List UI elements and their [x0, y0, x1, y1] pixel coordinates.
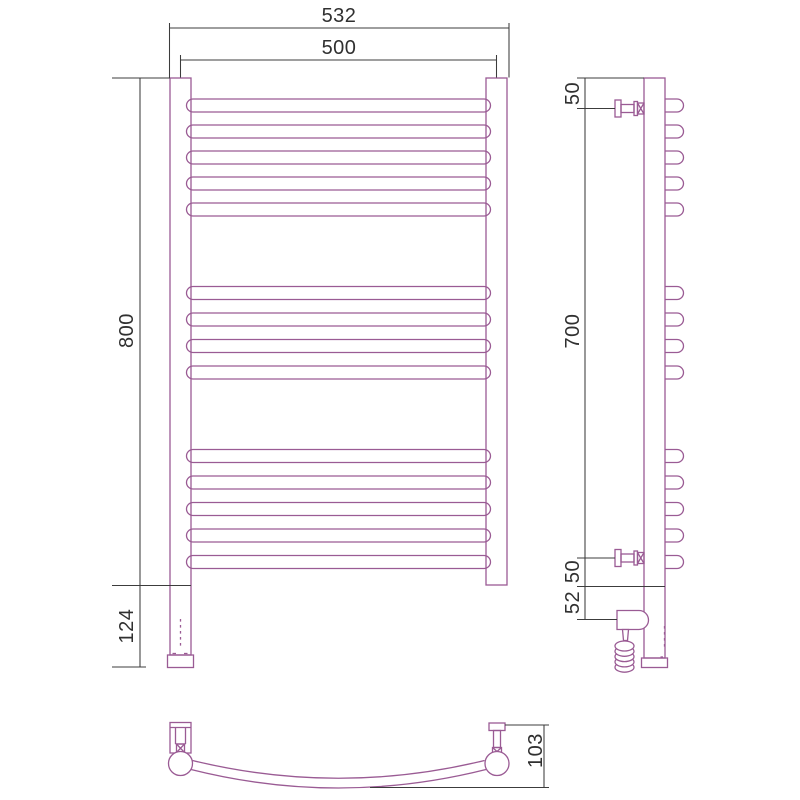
bracket-flange: [615, 100, 621, 117]
towel-bar: [187, 125, 491, 138]
dim-800-label: 800: [116, 313, 138, 348]
top-view: 103: [169, 723, 550, 789]
curved-bar-inner-arc: [193, 761, 485, 779]
bar-stub: [665, 503, 684, 516]
bar-stub: [665, 313, 684, 326]
bar-stub: [665, 476, 684, 489]
towel-bar: [187, 313, 491, 326]
dim-700-label: 700: [562, 314, 584, 349]
bar-stub: [665, 287, 684, 300]
front-bars: [187, 99, 491, 569]
dim-50-top-label: 50: [562, 82, 584, 105]
bar-stub: [665, 99, 684, 112]
wall-bracket-upper: [615, 100, 644, 117]
mounting-bracket-left: [170, 723, 191, 754]
technical-drawing-towel-radiator: 532 500 800 124: [0, 0, 800, 800]
wall-bracket-lower: [615, 550, 644, 567]
towel-bar: [187, 556, 491, 569]
collector-section-right: [485, 752, 509, 776]
bar-stub: [665, 556, 684, 569]
mounting-bracket-right: [489, 723, 505, 756]
towel-bar: [187, 503, 491, 516]
dim-500-label: 500: [322, 37, 357, 59]
dim-50-bottom-label: 50: [562, 560, 584, 583]
side-collector-tube: [644, 78, 665, 658]
side-collector-end-cap: [642, 658, 668, 668]
towel-bar: [187, 203, 491, 216]
power-cable-coil: [615, 641, 634, 672]
side-view: 50 700 50 52: [562, 78, 684, 672]
bar-stub: [665, 366, 684, 379]
dim-52-label: 52: [562, 591, 584, 614]
towel-bar: [187, 366, 491, 379]
left-collector-end-cap: [168, 655, 194, 668]
bracket-arm: [621, 105, 634, 113]
bar-stub: [665, 340, 684, 353]
towel-bar: [187, 450, 491, 463]
towel-bar: [187, 99, 491, 112]
collector-section-left: [169, 752, 193, 776]
towel-bar: [187, 287, 491, 300]
bar-stub: [665, 125, 684, 138]
towel-bar: [187, 340, 491, 353]
bar-stub: [665, 151, 684, 164]
bar-stub: [665, 529, 684, 542]
side-stubs: [665, 99, 684, 569]
dim-103-label: 103: [525, 733, 547, 768]
dim-532-label: 532: [322, 5, 357, 27]
bracket-stem: [494, 731, 501, 748]
bar-stub: [665, 177, 684, 190]
left-collector-tube: [170, 78, 191, 655]
bracket-flange: [489, 723, 505, 731]
coil-loop: [615, 641, 634, 651]
bar-stub: [665, 203, 684, 216]
bar-stub: [665, 450, 684, 463]
bracket-arm: [621, 554, 634, 562]
electric-unit-housing: [617, 611, 649, 630]
towel-bar: [187, 177, 491, 190]
towel-bar: [187, 476, 491, 489]
towel-bar: [187, 529, 491, 542]
towel-bar: [187, 151, 491, 164]
front-view: 532 500 800 124: [112, 5, 509, 668]
cable-gland: [623, 630, 629, 641]
dim-124-label: 124: [116, 609, 138, 644]
bracket-flange: [615, 550, 621, 567]
